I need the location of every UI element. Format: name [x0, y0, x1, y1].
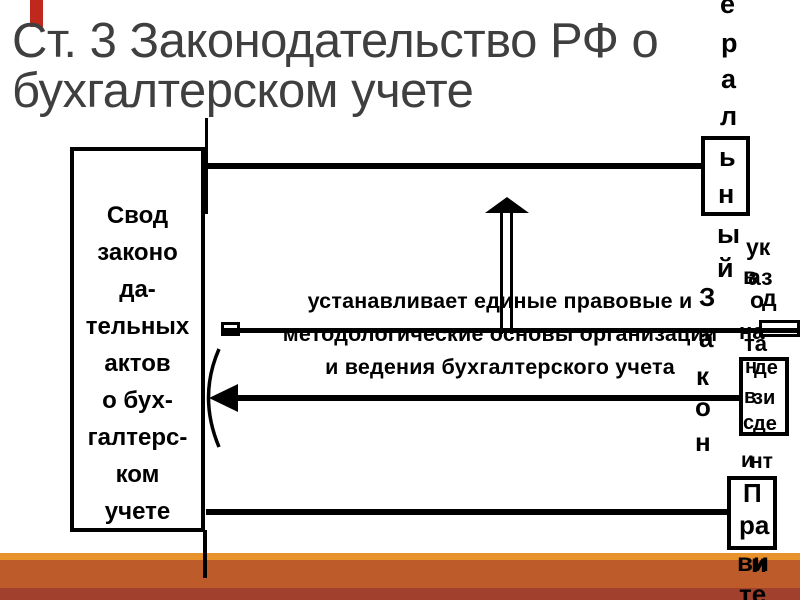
footer-bar-dark	[0, 588, 800, 600]
footer-bar-light	[0, 553, 800, 560]
source-box-line: да-	[74, 271, 201, 308]
source-box: Сводзаконода-тельныхактово бух-галтерс-к…	[70, 147, 205, 532]
connector-line-bottom	[206, 509, 730, 515]
label-box-president	[739, 357, 789, 436]
federal-law-letter: ы	[717, 221, 740, 248]
president-letter: и	[741, 450, 754, 471]
source-box-line: галтерс-	[74, 419, 201, 456]
up-arrow-head	[485, 196, 531, 214]
connector-line-middle	[232, 395, 740, 401]
statement-line3: и ведения бухгалтерского учета	[220, 351, 780, 384]
source-box-line: ком	[74, 456, 201, 493]
source-box-line: о бух-	[74, 382, 201, 419]
source-box-line: актов	[74, 345, 201, 382]
ukazy-letter: ук	[746, 236, 770, 259]
slide-title-line1: Ст. 3 Законодательство РФ о	[12, 16, 732, 66]
slide-title: Ст. 3 Законодательство РФ о бухгалтерско…	[12, 16, 732, 116]
label-box-government	[727, 476, 777, 550]
box-stem-line	[203, 530, 207, 578]
statement-line1: устанавливает единые правовые и	[220, 285, 780, 318]
source-box-line: Свод	[74, 197, 201, 234]
federal-law-letter: й	[717, 255, 734, 282]
center-statement: устанавливает единые правовые и методоло…	[220, 285, 780, 384]
source-box-line: учете	[74, 493, 201, 530]
label-box-federal	[701, 136, 750, 216]
slide: Ст. 3 Законодательство РФ о бухгалтерско…	[0, 0, 800, 600]
source-box-line: законо	[74, 234, 201, 271]
connector-line-top	[206, 163, 701, 169]
zakon-letter: н	[695, 429, 711, 455]
source-box-line: тельных	[74, 308, 201, 345]
slide-title-line2: бухгалтерском учете	[12, 66, 732, 116]
president-letter: нт	[750, 451, 773, 472]
source-box-text: Сводзаконода-тельныхактово бух-галтерс-к…	[74, 197, 201, 530]
statement-line2: методологические основы организации	[220, 318, 780, 351]
